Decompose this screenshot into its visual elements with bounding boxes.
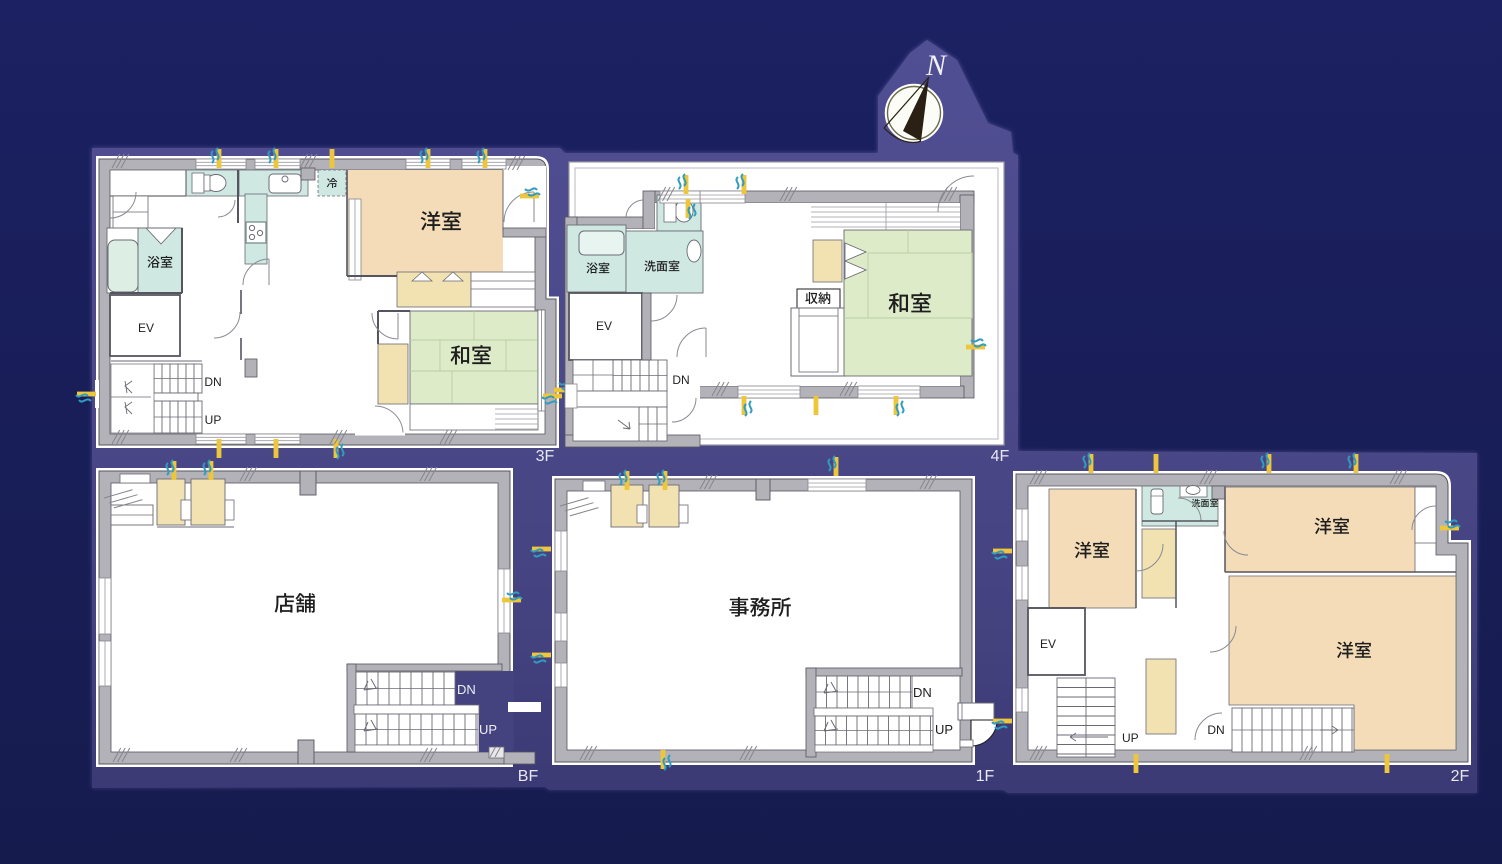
svg-text:DN: DN (913, 685, 932, 700)
svg-text:2F: 2F (1451, 768, 1470, 785)
svg-text:UP: UP (479, 722, 497, 737)
svg-text:N: N (925, 49, 948, 82)
svg-text:3F: 3F (536, 448, 555, 465)
svg-text:DN: DN (457, 682, 476, 697)
svg-text:EV: EV (138, 321, 154, 335)
svg-text:DN: DN (204, 375, 221, 389)
svg-text:DN: DN (672, 373, 689, 387)
svg-text:1F: 1F (976, 768, 995, 785)
svg-text:EV: EV (1040, 637, 1056, 651)
svg-text:4F: 4F (991, 448, 1010, 465)
svg-text:BF: BF (518, 768, 539, 785)
svg-text:UP: UP (935, 722, 953, 737)
svg-text:DN: DN (1207, 723, 1224, 737)
svg-text:EV: EV (596, 319, 612, 333)
svg-text:UP: UP (1122, 731, 1139, 745)
svg-text:UP: UP (205, 413, 222, 427)
